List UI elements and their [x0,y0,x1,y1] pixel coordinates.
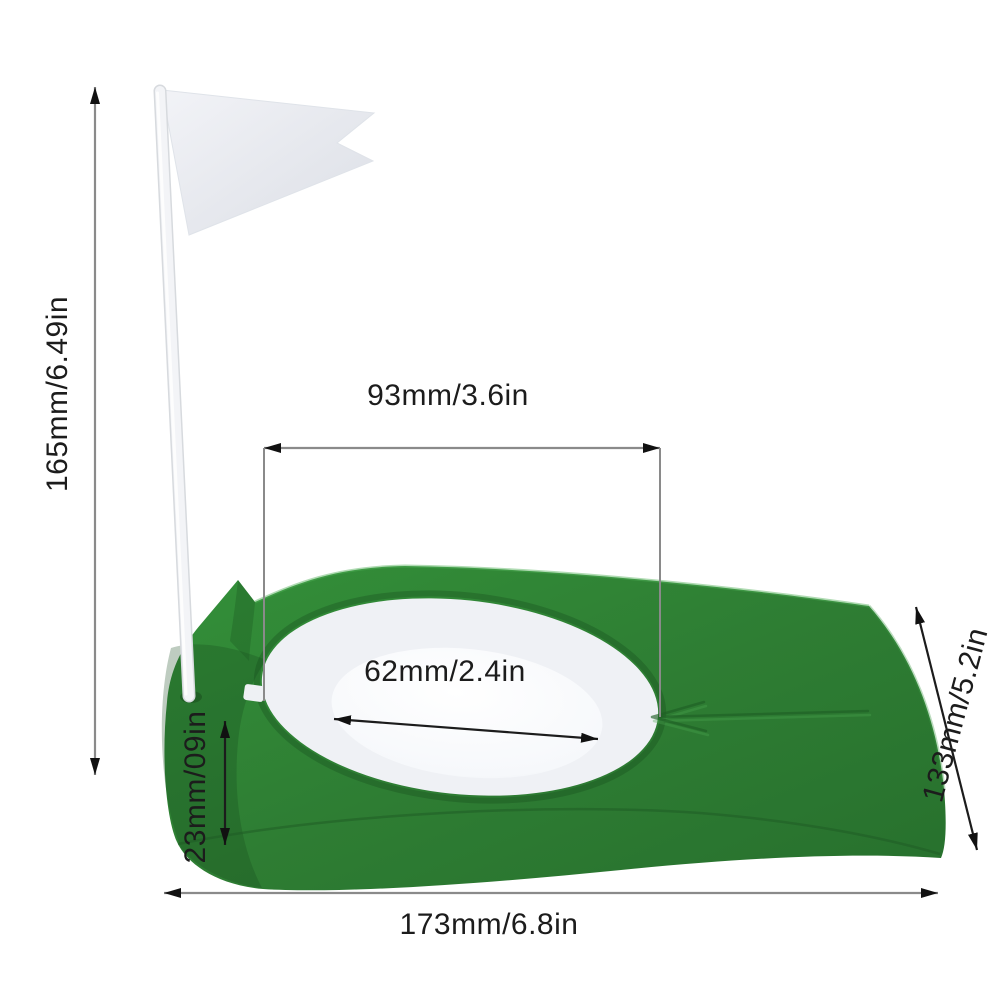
screenshot-root: 165mm/6.49in 93mm/3.6in 62mm/2.4in 23mm/… [0,0,1000,1000]
diagram-canvas [0,0,1000,1000]
label-hole-diameter: 62mm/2.4in [364,657,526,687]
label-flag-height: 165mm/6.49in [43,296,73,492]
label-base-thickness: 23mm/09in [181,711,211,864]
ring-left-notch [243,684,265,703]
putting-cup-product [158,90,946,890]
label-base-length: 173mm/6.8in [400,910,579,940]
flag-pennant [162,90,374,235]
label-cup-outer-width: 93mm/3.6in [367,381,529,411]
